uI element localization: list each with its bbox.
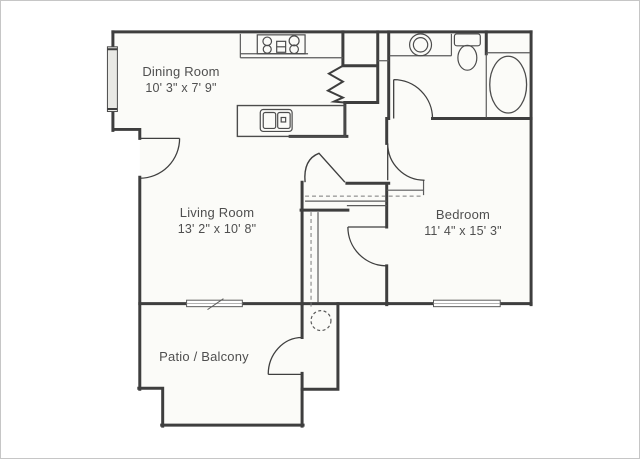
floorplan-image: Dining Room 10' 3" x 7' 9" Living Room 1… [0, 0, 640, 459]
room-dimensions: 10' 3" x 7' 9" [96, 80, 266, 96]
bedroom-window [434, 300, 501, 306]
dining-room-label: Dining Room 10' 3" x 7' 9" [96, 64, 266, 96]
living-room-label: Living Room 13' 2" x 10' 8" [132, 205, 302, 237]
room-name: Patio / Balcony [119, 349, 289, 365]
room-dimensions: 13' 2" x 10' 8" [132, 221, 302, 237]
bedroom-label: Bedroom 11' 4" x 15' 3" [378, 207, 548, 239]
room-name: Bedroom [378, 207, 548, 223]
patio-floor [140, 305, 338, 426]
room-name: Dining Room [96, 64, 266, 80]
patio-balcony-label: Patio / Balcony [119, 349, 289, 365]
room-dimensions: 11' 4" x 15' 3" [378, 223, 548, 239]
room-name: Living Room [132, 205, 302, 221]
